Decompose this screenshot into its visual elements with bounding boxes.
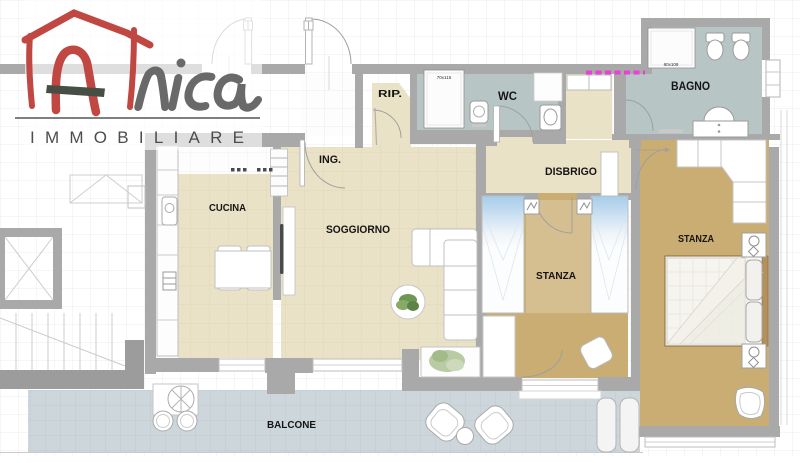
svg-text:BALCONE: BALCONE <box>267 419 316 431</box>
svg-text:70x115: 70x115 <box>437 75 452 80</box>
svg-text:SOGGIORNO: SOGGIORNO <box>326 224 390 236</box>
svg-text:ING.: ING. <box>319 154 341 166</box>
svg-text:RIP.: RIP. <box>378 88 402 100</box>
svg-text:80x108: 80x108 <box>664 62 679 67</box>
svg-text:BAGNO: BAGNO <box>671 81 710 93</box>
svg-text:STANZA: STANZA <box>536 270 576 282</box>
svg-text:DISBRIGO: DISBRIGO <box>545 166 597 178</box>
svg-text:STANZA: STANZA <box>678 233 714 245</box>
svg-text:CUCINA: CUCINA <box>209 202 246 214</box>
svg-text:WC: WC <box>498 91 517 103</box>
